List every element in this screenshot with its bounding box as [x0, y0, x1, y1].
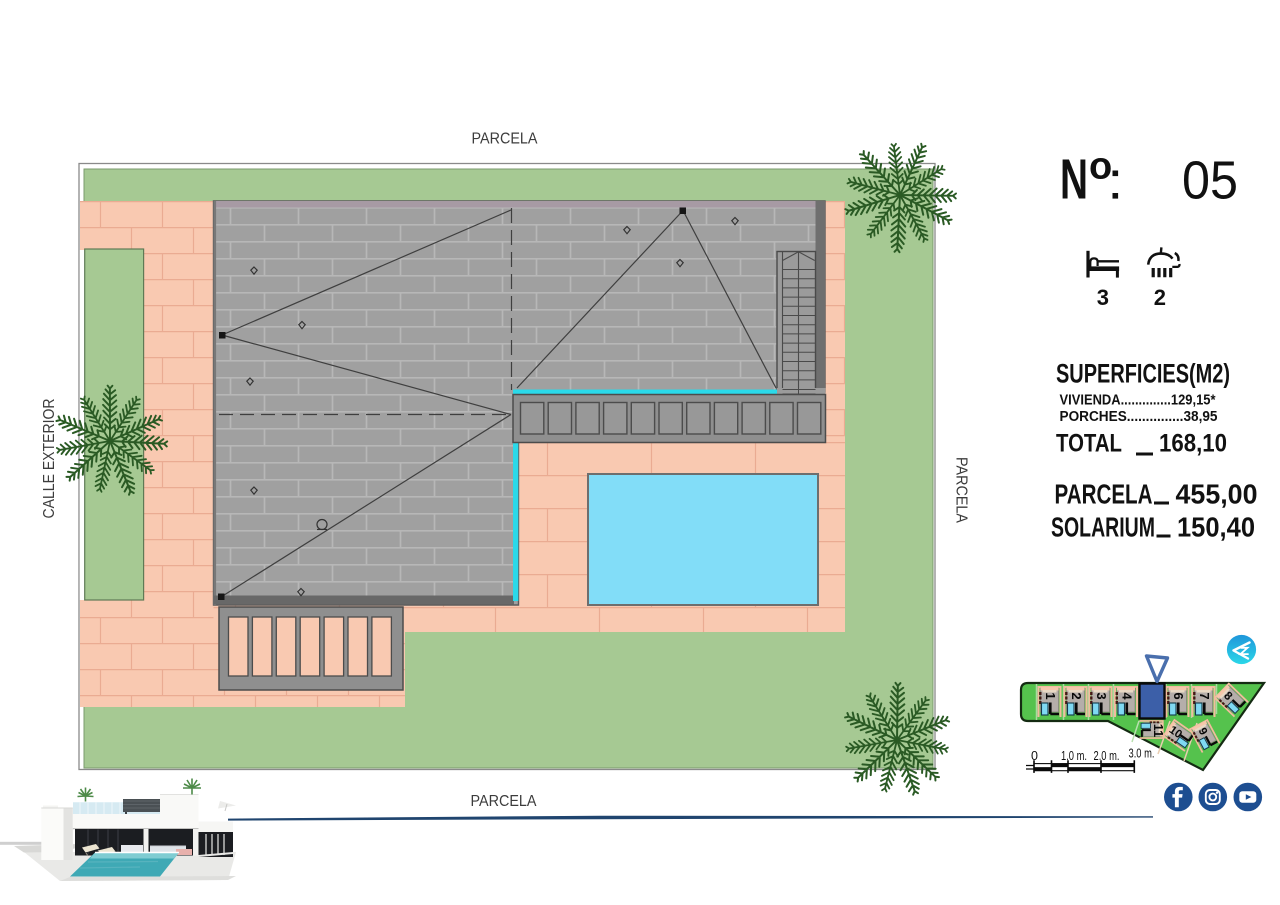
svg-text:4: 4 — [1120, 692, 1135, 700]
svg-text:PARCELA: PARCELA — [953, 457, 970, 523]
svg-text:2: 2 — [1154, 285, 1166, 310]
svg-text:VIVIENDA..............129,15*: VIVIENDA..............129,15* — [1060, 393, 1216, 409]
svg-text:CALLE EXTERIOR: CALLE EXTERIOR — [41, 399, 58, 519]
svg-text:2.0 m.: 2.0 m. — [1094, 749, 1120, 763]
svg-text:2: 2 — [1069, 692, 1084, 699]
svg-text:1: 1 — [1043, 692, 1058, 699]
svg-text:455,00: 455,00 — [1176, 479, 1258, 510]
svg-text:N: N — [1060, 148, 1088, 212]
svg-text:168,10: 168,10 — [1159, 430, 1227, 458]
svg-text:SUPERFICIES(M2): SUPERFICIES(M2) — [1056, 359, 1230, 389]
svg-text:PARCELA: PARCELA — [471, 793, 537, 810]
svg-text:PORCHES...............38,95: PORCHES...............38,95 — [1060, 409, 1218, 425]
svg-text:150,40: 150,40 — [1177, 512, 1255, 543]
svg-text:PARCELA: PARCELA — [1055, 479, 1153, 510]
svg-text:05: 05 — [1182, 151, 1238, 211]
svg-text:PARCELA: PARCELA — [472, 131, 538, 148]
svg-text:7: 7 — [1197, 692, 1212, 699]
svg-text:TOTAL: TOTAL — [1056, 430, 1122, 458]
svg-text:6: 6 — [1171, 692, 1186, 699]
svg-text:3: 3 — [1094, 692, 1109, 699]
svg-text:1.0 m.: 1.0 m. — [1061, 749, 1087, 763]
svg-text:3.0 m.: 3.0 m. — [1129, 747, 1155, 761]
svg-text:o: o — [1089, 146, 1112, 188]
svg-text:3: 3 — [1097, 285, 1109, 310]
svg-text:SOLARIUM: SOLARIUM — [1051, 512, 1155, 543]
